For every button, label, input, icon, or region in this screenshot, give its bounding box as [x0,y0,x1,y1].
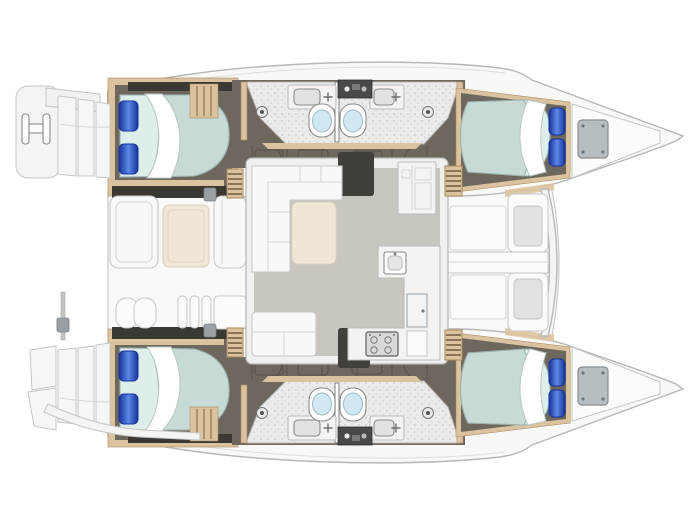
galley-locker [407,331,427,356]
floorplan-canvas [0,0,700,525]
steps-down [445,330,462,360]
toilet [340,104,366,137]
headboard-trim [566,104,571,172]
stove [366,332,398,356]
saloon [246,152,448,368]
l-shaped-sofa [252,166,342,272]
sun-pad [508,194,548,252]
toilet [309,104,335,137]
hanging-locker [190,84,218,118]
cabin-inboard-trim [112,180,224,186]
twin-helm-seat [116,298,156,328]
forward-cabinet [398,162,436,214]
cabin-top-shade [128,82,238,91]
sink-unit [370,85,404,109]
transom-panel [214,296,246,329]
steps-down [227,328,243,357]
catamaran-floorplan [0,0,700,525]
davit-pole [61,292,65,340]
pillow [119,144,138,174]
bathroom-sill [262,143,422,149]
pillow [549,108,565,135]
pillow [119,101,138,131]
washer-unit [338,80,372,98]
transom-quarter [30,346,56,390]
pillow [549,139,565,166]
bathroom-jamb [241,82,247,140]
fridge-door [407,294,427,327]
bench-seat [214,196,246,268]
aft-cabin [108,78,238,198]
deck-latch [204,188,216,201]
port-stern [16,86,110,178]
forward-cabin [456,88,571,192]
deck-panel [450,275,506,319]
cockpit-table [163,205,209,267]
shower-drain [423,107,434,118]
cockpit [110,188,246,337]
steps-down [227,169,243,198]
deck-latch [204,324,216,337]
deck-panel [450,206,506,250]
bench-seat [110,196,158,268]
transom-steps [58,96,110,178]
foredeck [448,189,557,336]
aft-bench [252,312,316,356]
chaise-cushion [292,202,336,264]
davit-clip [57,318,69,332]
sun-pad [508,273,548,331]
shower-drain [257,107,268,118]
galley-sink [384,252,406,274]
steps-down [445,166,462,196]
transom-louvers [178,296,211,328]
entry-alcove [338,152,374,196]
